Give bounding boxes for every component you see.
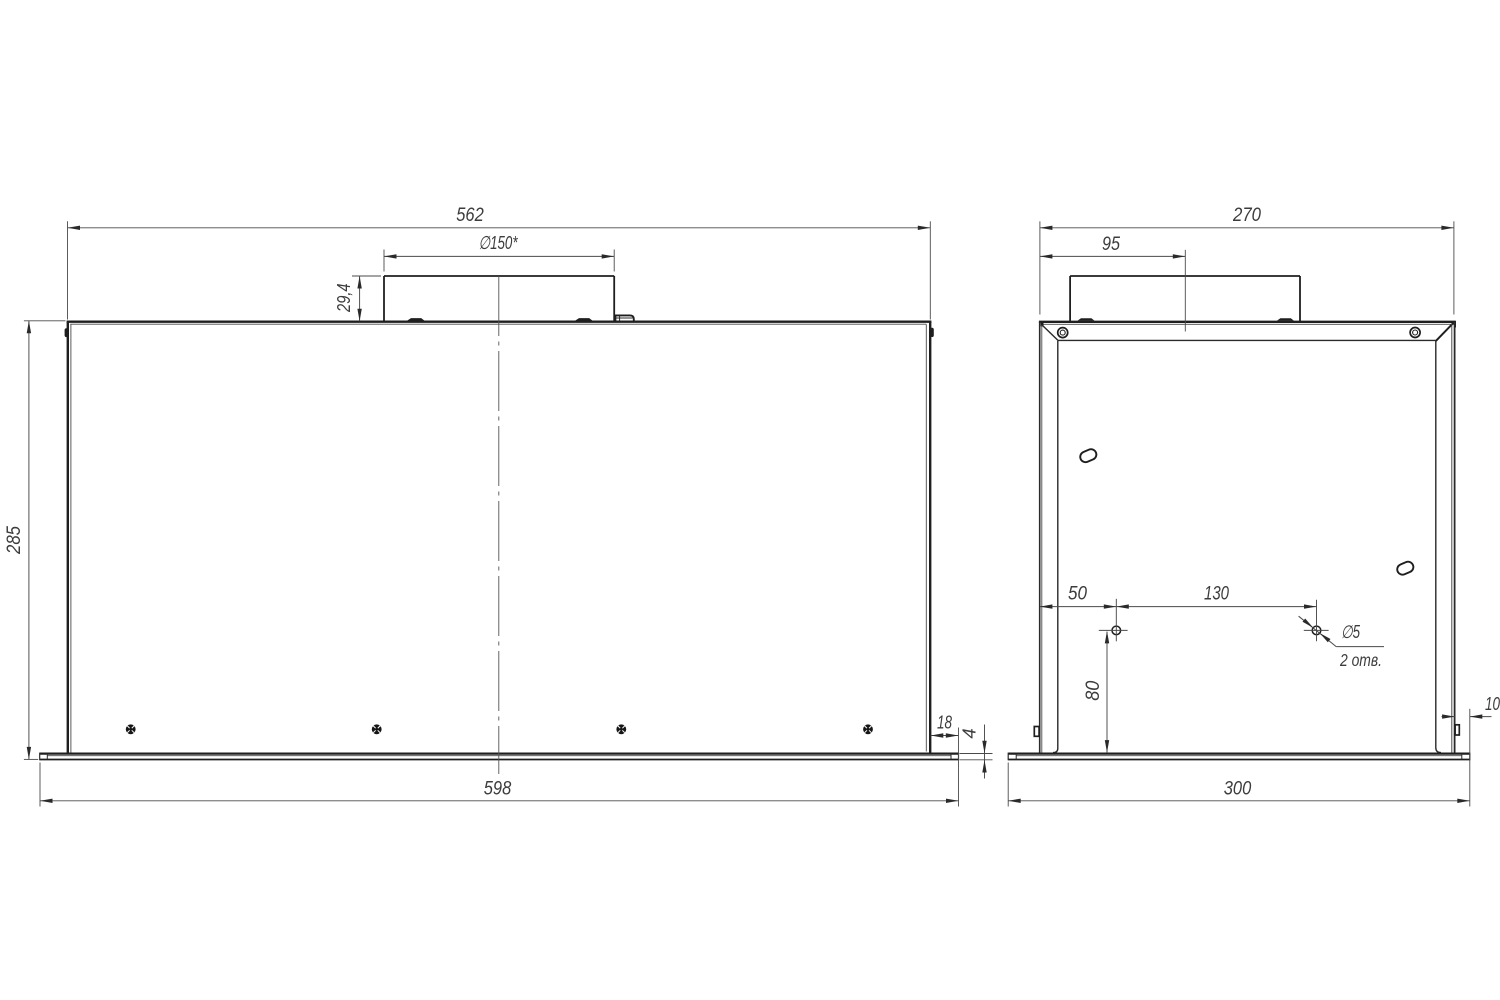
svg-text:∅150*: ∅150* bbox=[479, 232, 519, 253]
svg-text:598: 598 bbox=[484, 778, 512, 799]
svg-text:270: 270 bbox=[1232, 205, 1261, 226]
svg-text:∅5: ∅5 bbox=[1341, 622, 1361, 642]
svg-text:50: 50 bbox=[1068, 584, 1087, 605]
svg-text:80: 80 bbox=[1083, 680, 1104, 700]
svg-text:285: 285 bbox=[4, 526, 25, 555]
svg-text:2 отв.: 2 отв. bbox=[1339, 650, 1382, 670]
svg-text:95: 95 bbox=[1102, 234, 1120, 255]
svg-text:10: 10 bbox=[1485, 693, 1500, 714]
svg-text:300: 300 bbox=[1224, 778, 1252, 799]
svg-text:130: 130 bbox=[1204, 584, 1229, 605]
svg-text:562: 562 bbox=[456, 205, 484, 226]
svg-text:18: 18 bbox=[937, 711, 953, 732]
svg-text:4: 4 bbox=[959, 728, 980, 738]
svg-text:29,4: 29,4 bbox=[333, 283, 354, 312]
